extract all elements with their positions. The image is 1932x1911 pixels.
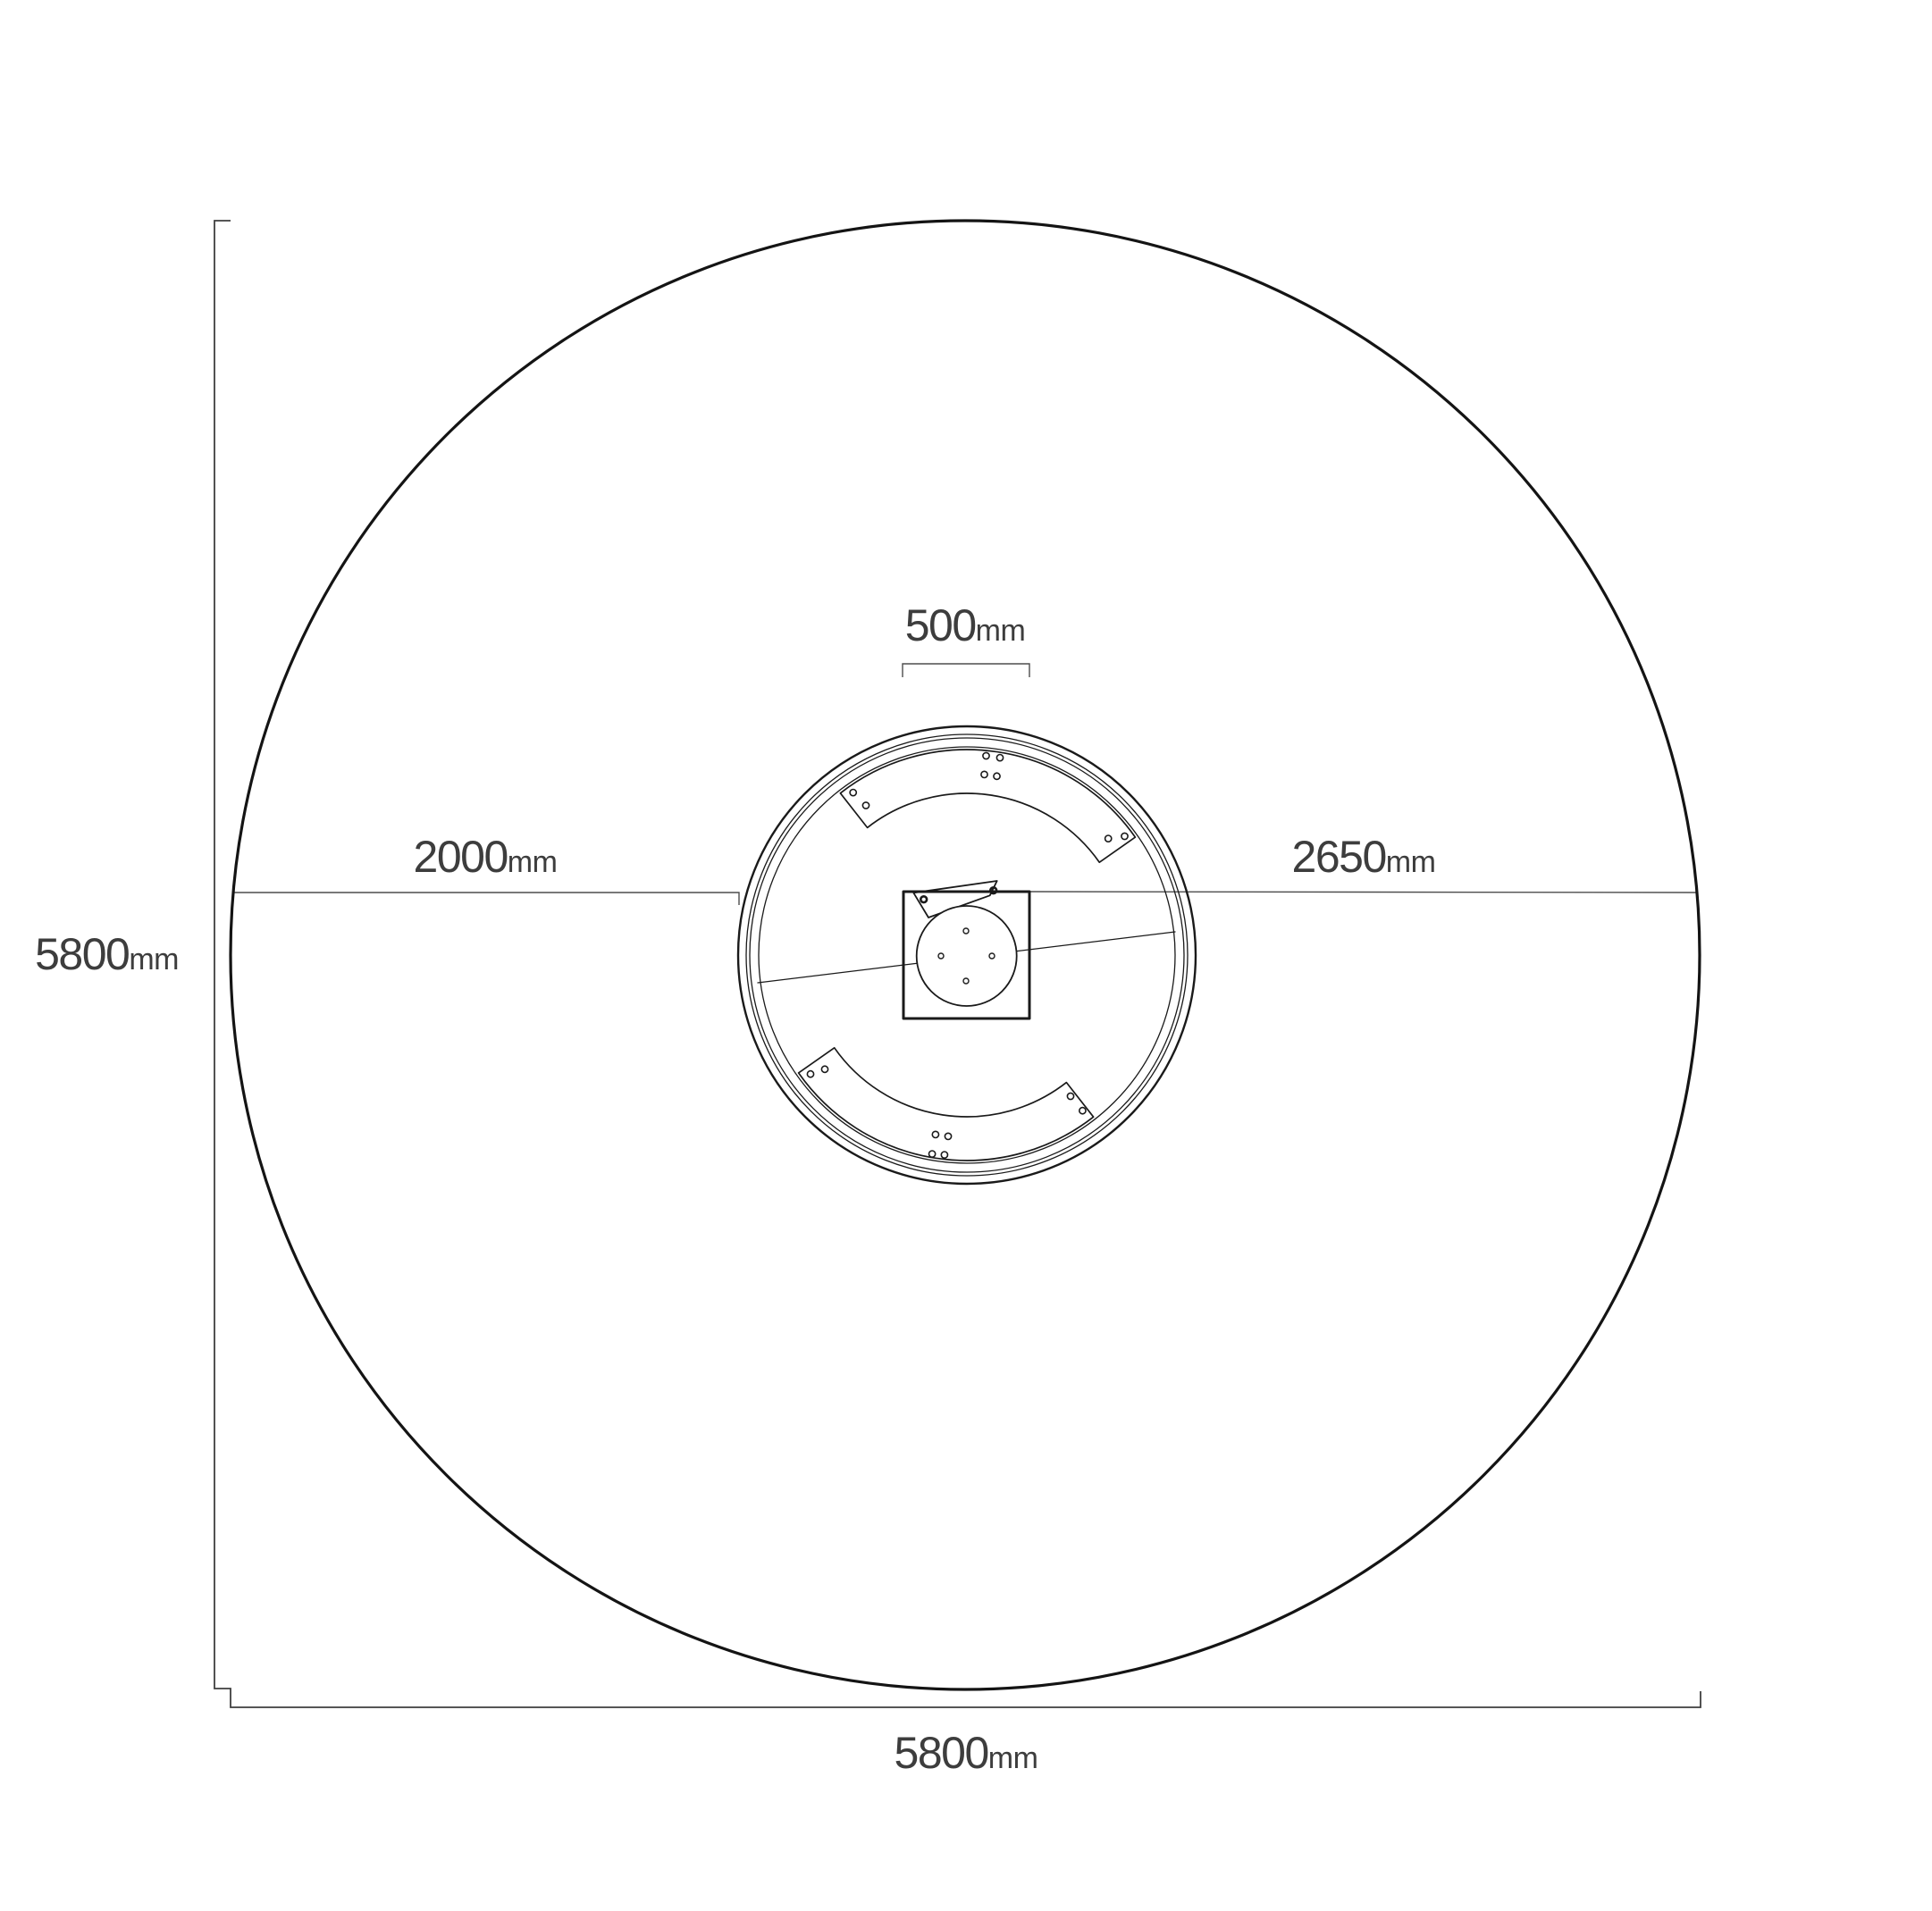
screw-hole	[821, 1066, 827, 1072]
center-chord-line-left	[232, 893, 739, 905]
dim-label-left-span: 2000mm	[414, 832, 558, 882]
screw-holes-bottom-plate	[807, 1066, 1086, 1158]
center-chord-line-right	[1029, 892, 1698, 893]
screw-hole	[1079, 1108, 1086, 1114]
screw-hole	[941, 1152, 947, 1158]
screw-hole	[1067, 1093, 1073, 1099]
dim-label-right-span: 2650mm	[1292, 832, 1436, 882]
hub-arc-plate-bottom	[799, 1048, 1094, 1161]
screw-hole	[862, 802, 869, 809]
dim-label-hub-width: 500mm	[905, 600, 1026, 650]
screw-hole	[994, 773, 1000, 779]
screw-hole	[1121, 833, 1128, 839]
screw-hole	[929, 1151, 936, 1157]
dimension-labels: 500mm 2000mm 2650mm 5800mm 5800mm	[35, 600, 1435, 1778]
hub-width-bracket	[903, 664, 1029, 677]
hub-arc-plate-top	[840, 750, 1135, 862]
screw-hole	[1105, 835, 1112, 842]
screw-hole	[983, 752, 989, 759]
screw-hole	[850, 790, 856, 796]
technical-drawing-page: 500mm 2000mm 2650mm 5800mm 5800mm	[0, 0, 1932, 1911]
dim-label-overall-width: 5800mm	[895, 1728, 1038, 1778]
dim-label-overall-height: 5800mm	[35, 929, 179, 979]
hub-center-circle	[917, 906, 1017, 1006]
hub-assembly	[738, 726, 1196, 1184]
screw-holes-top-plate	[850, 752, 1128, 842]
screw-hole	[981, 771, 987, 777]
screw-hole	[807, 1071, 813, 1077]
screw-hole	[945, 1133, 951, 1139]
screw-hole	[996, 755, 1003, 761]
screw-hole	[932, 1131, 938, 1137]
drawing-canvas: 500mm 2000mm 2650mm 5800mm 5800mm	[0, 0, 1932, 1911]
